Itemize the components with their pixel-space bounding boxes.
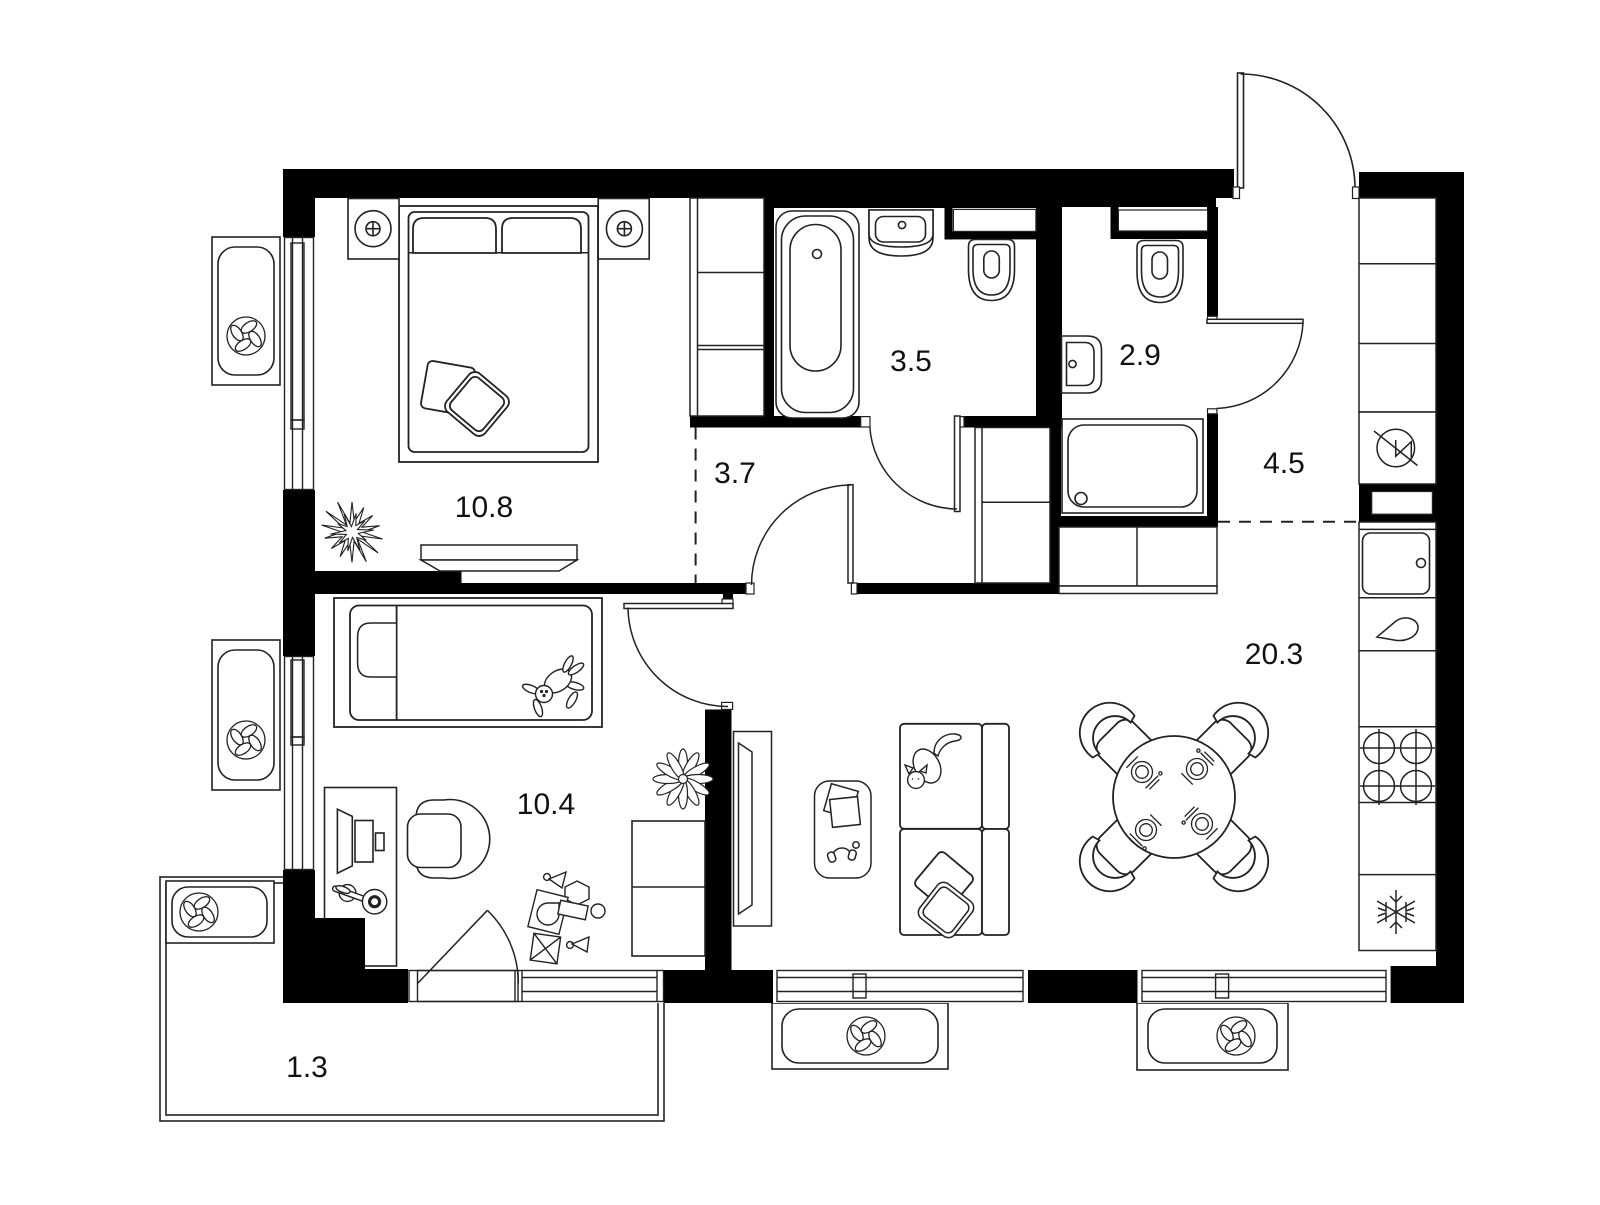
- svg-text:3.7: 3.7: [714, 457, 756, 490]
- svg-text:2.9: 2.9: [1119, 339, 1161, 372]
- svg-text:10.8: 10.8: [455, 491, 513, 524]
- svg-text:1.3: 1.3: [286, 1051, 328, 1084]
- svg-text:20.3: 20.3: [1245, 638, 1303, 671]
- svg-text:10.4: 10.4: [517, 788, 575, 821]
- svg-text:4.5: 4.5: [1263, 447, 1305, 480]
- svg-text:3.5: 3.5: [890, 345, 932, 378]
